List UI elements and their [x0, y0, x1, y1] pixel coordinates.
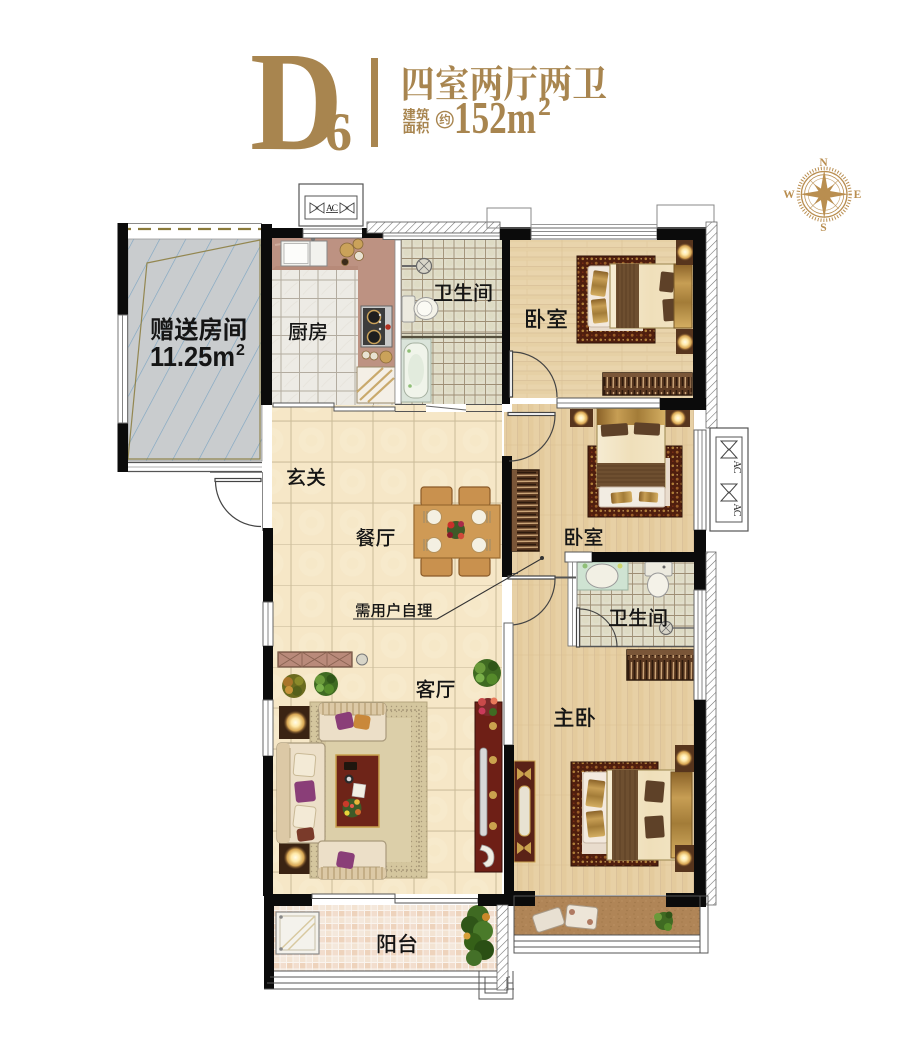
svg-text:2: 2 [538, 92, 551, 121]
svg-text:AC: AC [731, 461, 742, 474]
svg-text:E: E [854, 189, 862, 201]
svg-text:152m: 152m [454, 93, 536, 143]
svg-text:2: 2 [236, 342, 245, 359]
svg-text:W: W [783, 189, 795, 201]
svg-text:AC: AC [731, 504, 742, 517]
svg-text:6: 6 [325, 102, 352, 162]
svg-text:N: N [819, 157, 828, 169]
svg-text:S: S [820, 222, 826, 234]
svg-text:11.25m: 11.25m [150, 341, 235, 372]
